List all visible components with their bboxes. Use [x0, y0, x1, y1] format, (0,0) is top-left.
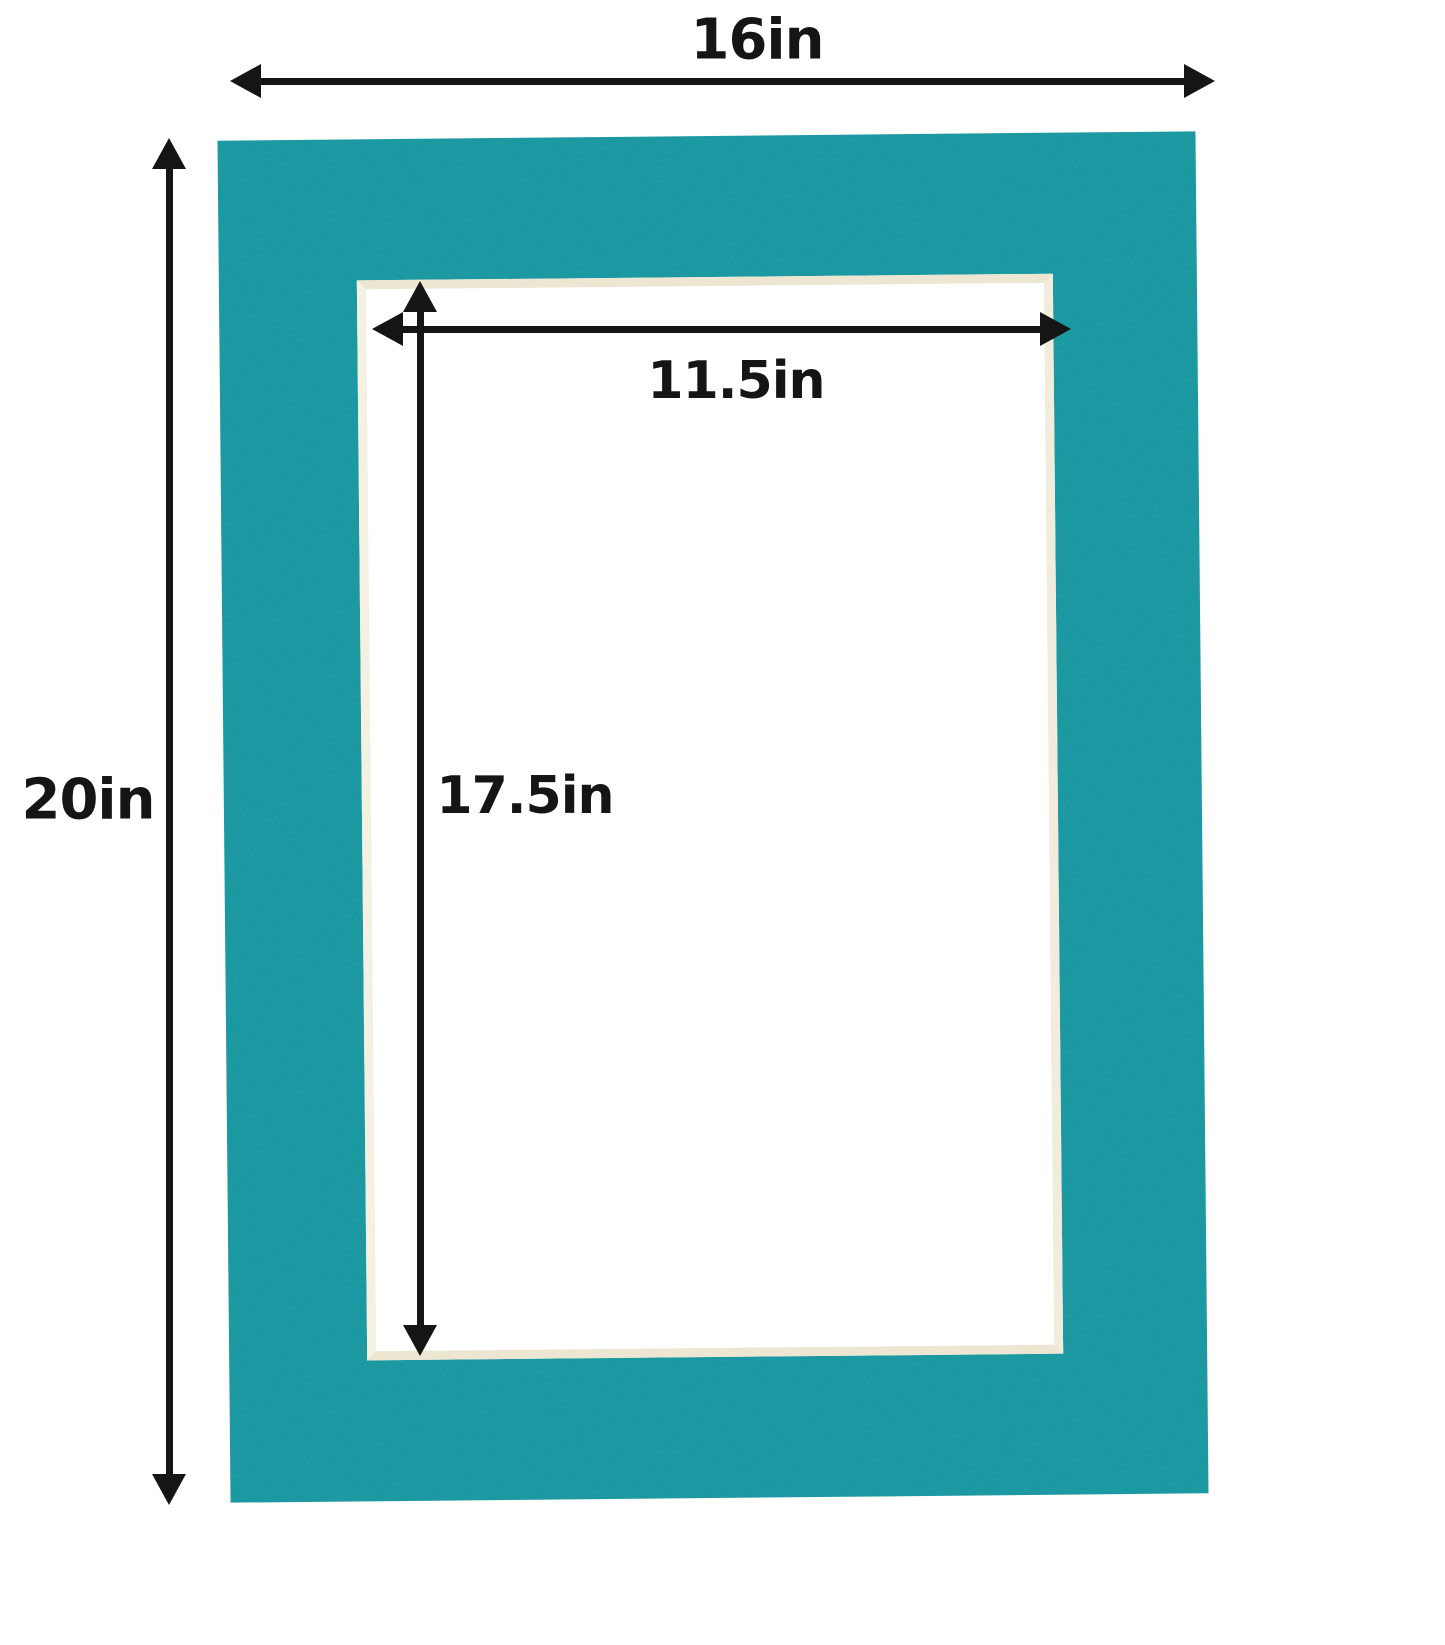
arrowhead-right-icon — [1184, 64, 1215, 98]
outer-width-label: 16in — [691, 8, 824, 73]
arrowhead-left-icon — [372, 312, 403, 346]
opening-width-label: 11.5in — [647, 351, 824, 411]
arrowhead-up-icon — [152, 138, 186, 169]
outer-height-label: 20in — [22, 768, 155, 833]
arrowhead-down-icon — [403, 1325, 437, 1356]
opening-height-arrow-shaft — [417, 301, 424, 1336]
arrowhead-left-icon — [230, 64, 261, 98]
arrowhead-right-icon — [1040, 312, 1071, 346]
opening-width-arrow-shaft — [392, 326, 1051, 333]
mat-dimension-diagram: 16in 20in 11.5in 17.5in — [0, 0, 1445, 1645]
opening-height-label: 17.5in — [436, 766, 613, 826]
outer-width-arrow-shaft — [250, 78, 1195, 85]
arrowhead-up-icon — [403, 281, 437, 312]
arrowhead-down-icon — [152, 1474, 186, 1505]
outer-height-arrow-shaft — [166, 158, 173, 1485]
